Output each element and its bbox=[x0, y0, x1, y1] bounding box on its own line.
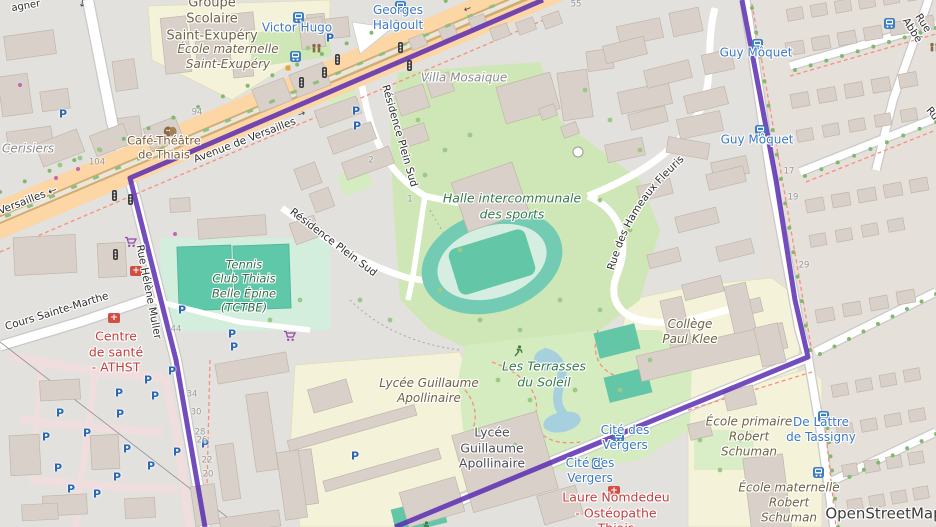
map-canvas[interactable]: Rue des Hameaux Fleuris PPPPPPPPPPPPPPPP… bbox=[0, 0, 936, 527]
tennis-area bbox=[160, 238, 330, 332]
map-tiles: Rue des Hameaux Fleuris bbox=[0, 0, 936, 527]
